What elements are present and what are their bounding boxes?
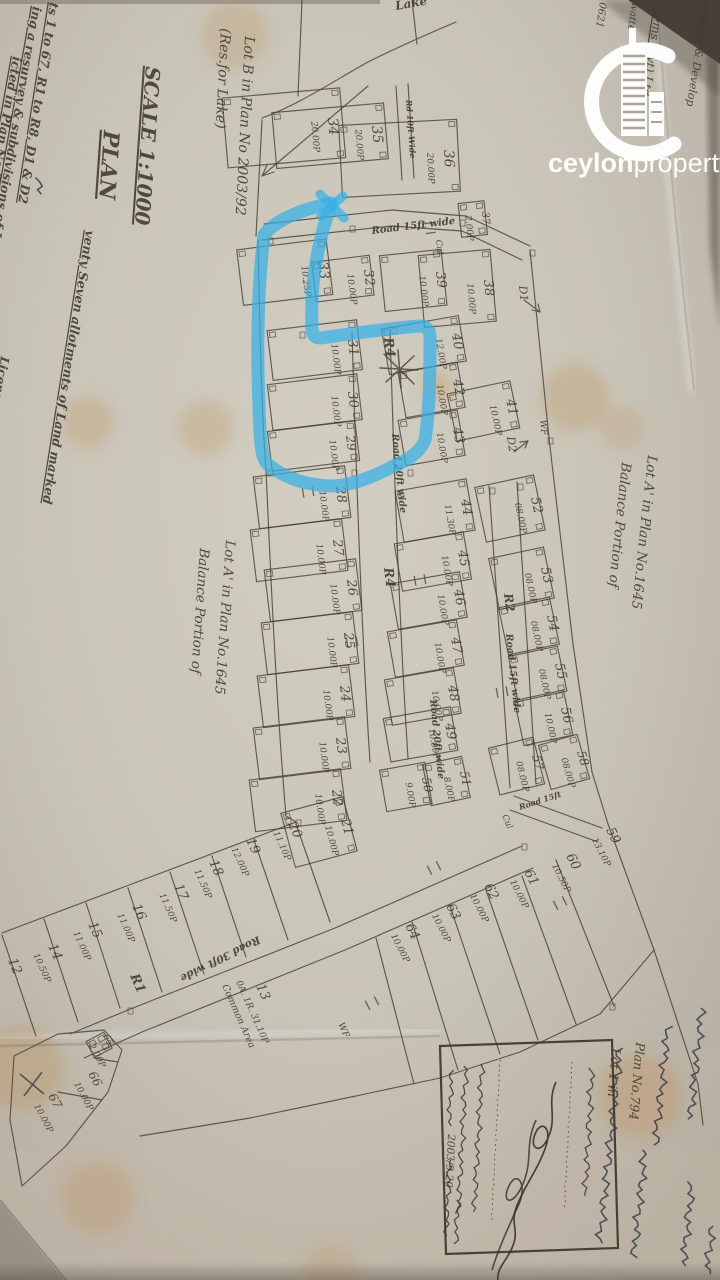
lot-number-label: 48 — [444, 683, 462, 703]
plan-marker-label: R4 — [380, 336, 397, 359]
lot-number-label: 47 — [447, 635, 465, 656]
lot-number-label: 36 — [440, 149, 457, 168]
plan-marker-label: R4 — [380, 566, 397, 589]
plan-title-text: PLAN — [93, 129, 124, 202]
lot-number-label: 29 — [343, 434, 359, 452]
lot-number-label: 42 — [449, 377, 467, 397]
lot-number-label: 46 — [450, 587, 468, 607]
lot-number-label: 27 — [329, 538, 346, 558]
lot-number-label: 34 — [324, 117, 341, 136]
lot-number-label: 23 — [332, 736, 349, 755]
lot-area-label: 20.00P — [424, 152, 436, 186]
lot-number-label: 50 — [419, 776, 436, 794]
plan-marker-label: R2 — [501, 591, 518, 612]
lot-number-label: 49 — [441, 721, 459, 741]
lot-number-label: 25 — [340, 631, 357, 650]
lot-number-label: 39 — [432, 271, 449, 289]
brand-bold: ceylon — [548, 148, 634, 178]
lot-number-label: 22 — [328, 788, 345, 807]
lot-number-label: 32 — [360, 269, 377, 287]
plan-marker-label: D1 — [516, 284, 531, 302]
lot-number-label: 30 — [344, 391, 361, 409]
lot-number-label: 37 — [479, 211, 491, 225]
plan-marker-label: WF — [537, 419, 549, 436]
lot-number-label: 40 — [448, 331, 466, 351]
lot-number-label: 43 — [449, 425, 467, 445]
lot-number-label: 31 — [344, 339, 361, 357]
lot-number-label: 24 — [336, 684, 353, 703]
lot-number-label: 45 — [454, 548, 472, 568]
watermark-text: ceylonproperty.lk — [548, 148, 720, 178]
plan-canvas: 3310.25P3210.00P3110.00P3010.00P2910.00P… — [0, 0, 720, 1280]
lot-number-label: 26 — [343, 578, 360, 597]
plan-marker-label: Cul — [433, 239, 445, 255]
lot-number-label: 35 — [368, 125, 385, 144]
brand-regular: property — [634, 148, 720, 178]
lot-number-label: 38 — [480, 279, 496, 297]
plan-marker-label: D2 — [504, 435, 519, 453]
lot-number-label: 44 — [457, 497, 475, 517]
survey-plan-photo: 3310.25P3210.00P3110.00P3010.00P2910.00P… — [0, 0, 720, 1280]
